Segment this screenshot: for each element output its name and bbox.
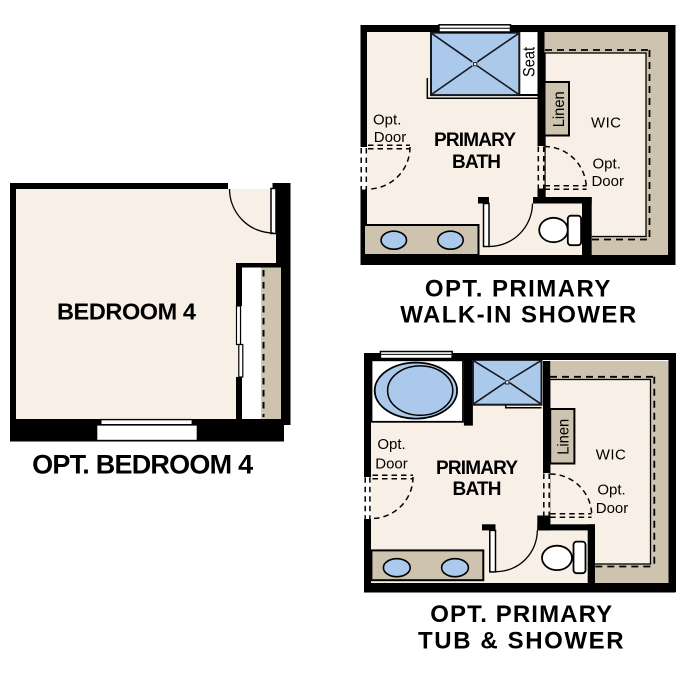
svg-text:Door: Door xyxy=(374,129,407,146)
svg-text:OPT. PRIMARY: OPT. PRIMARY xyxy=(430,601,612,628)
svg-text:BATH: BATH xyxy=(453,479,502,500)
svg-text:WIC: WIC xyxy=(596,447,626,464)
svg-text:Door: Door xyxy=(596,500,629,517)
svg-text:Door: Door xyxy=(591,173,624,190)
svg-text:BATH: BATH xyxy=(452,152,501,173)
svg-text:Opt.: Opt. xyxy=(377,436,405,453)
svg-text:OPT. PRIMARY: OPT. PRIMARY xyxy=(425,276,611,303)
svg-text:Opt.: Opt. xyxy=(597,482,625,499)
svg-text:WALK-IN SHOWER: WALK-IN SHOWER xyxy=(400,302,636,329)
svg-text:TUB & SHOWER: TUB & SHOWER xyxy=(418,628,624,655)
svg-text:Opt.: Opt. xyxy=(373,112,401,129)
svg-text:Linen: Linen xyxy=(555,419,572,455)
svg-text:Seat: Seat xyxy=(520,47,539,77)
svg-text:OPT. BEDROOM 4: OPT. BEDROOM 4 xyxy=(32,450,253,480)
svg-text:BEDROOM 4: BEDROOM 4 xyxy=(57,299,196,325)
svg-text:Opt.: Opt. xyxy=(593,156,621,173)
svg-text:PRIMARY: PRIMARY xyxy=(434,130,516,151)
svg-text:WIC: WIC xyxy=(591,115,621,132)
svg-text:Door: Door xyxy=(375,456,408,473)
svg-text:Linen: Linen xyxy=(551,91,568,127)
svg-text:PRIMARY: PRIMARY xyxy=(436,458,518,479)
